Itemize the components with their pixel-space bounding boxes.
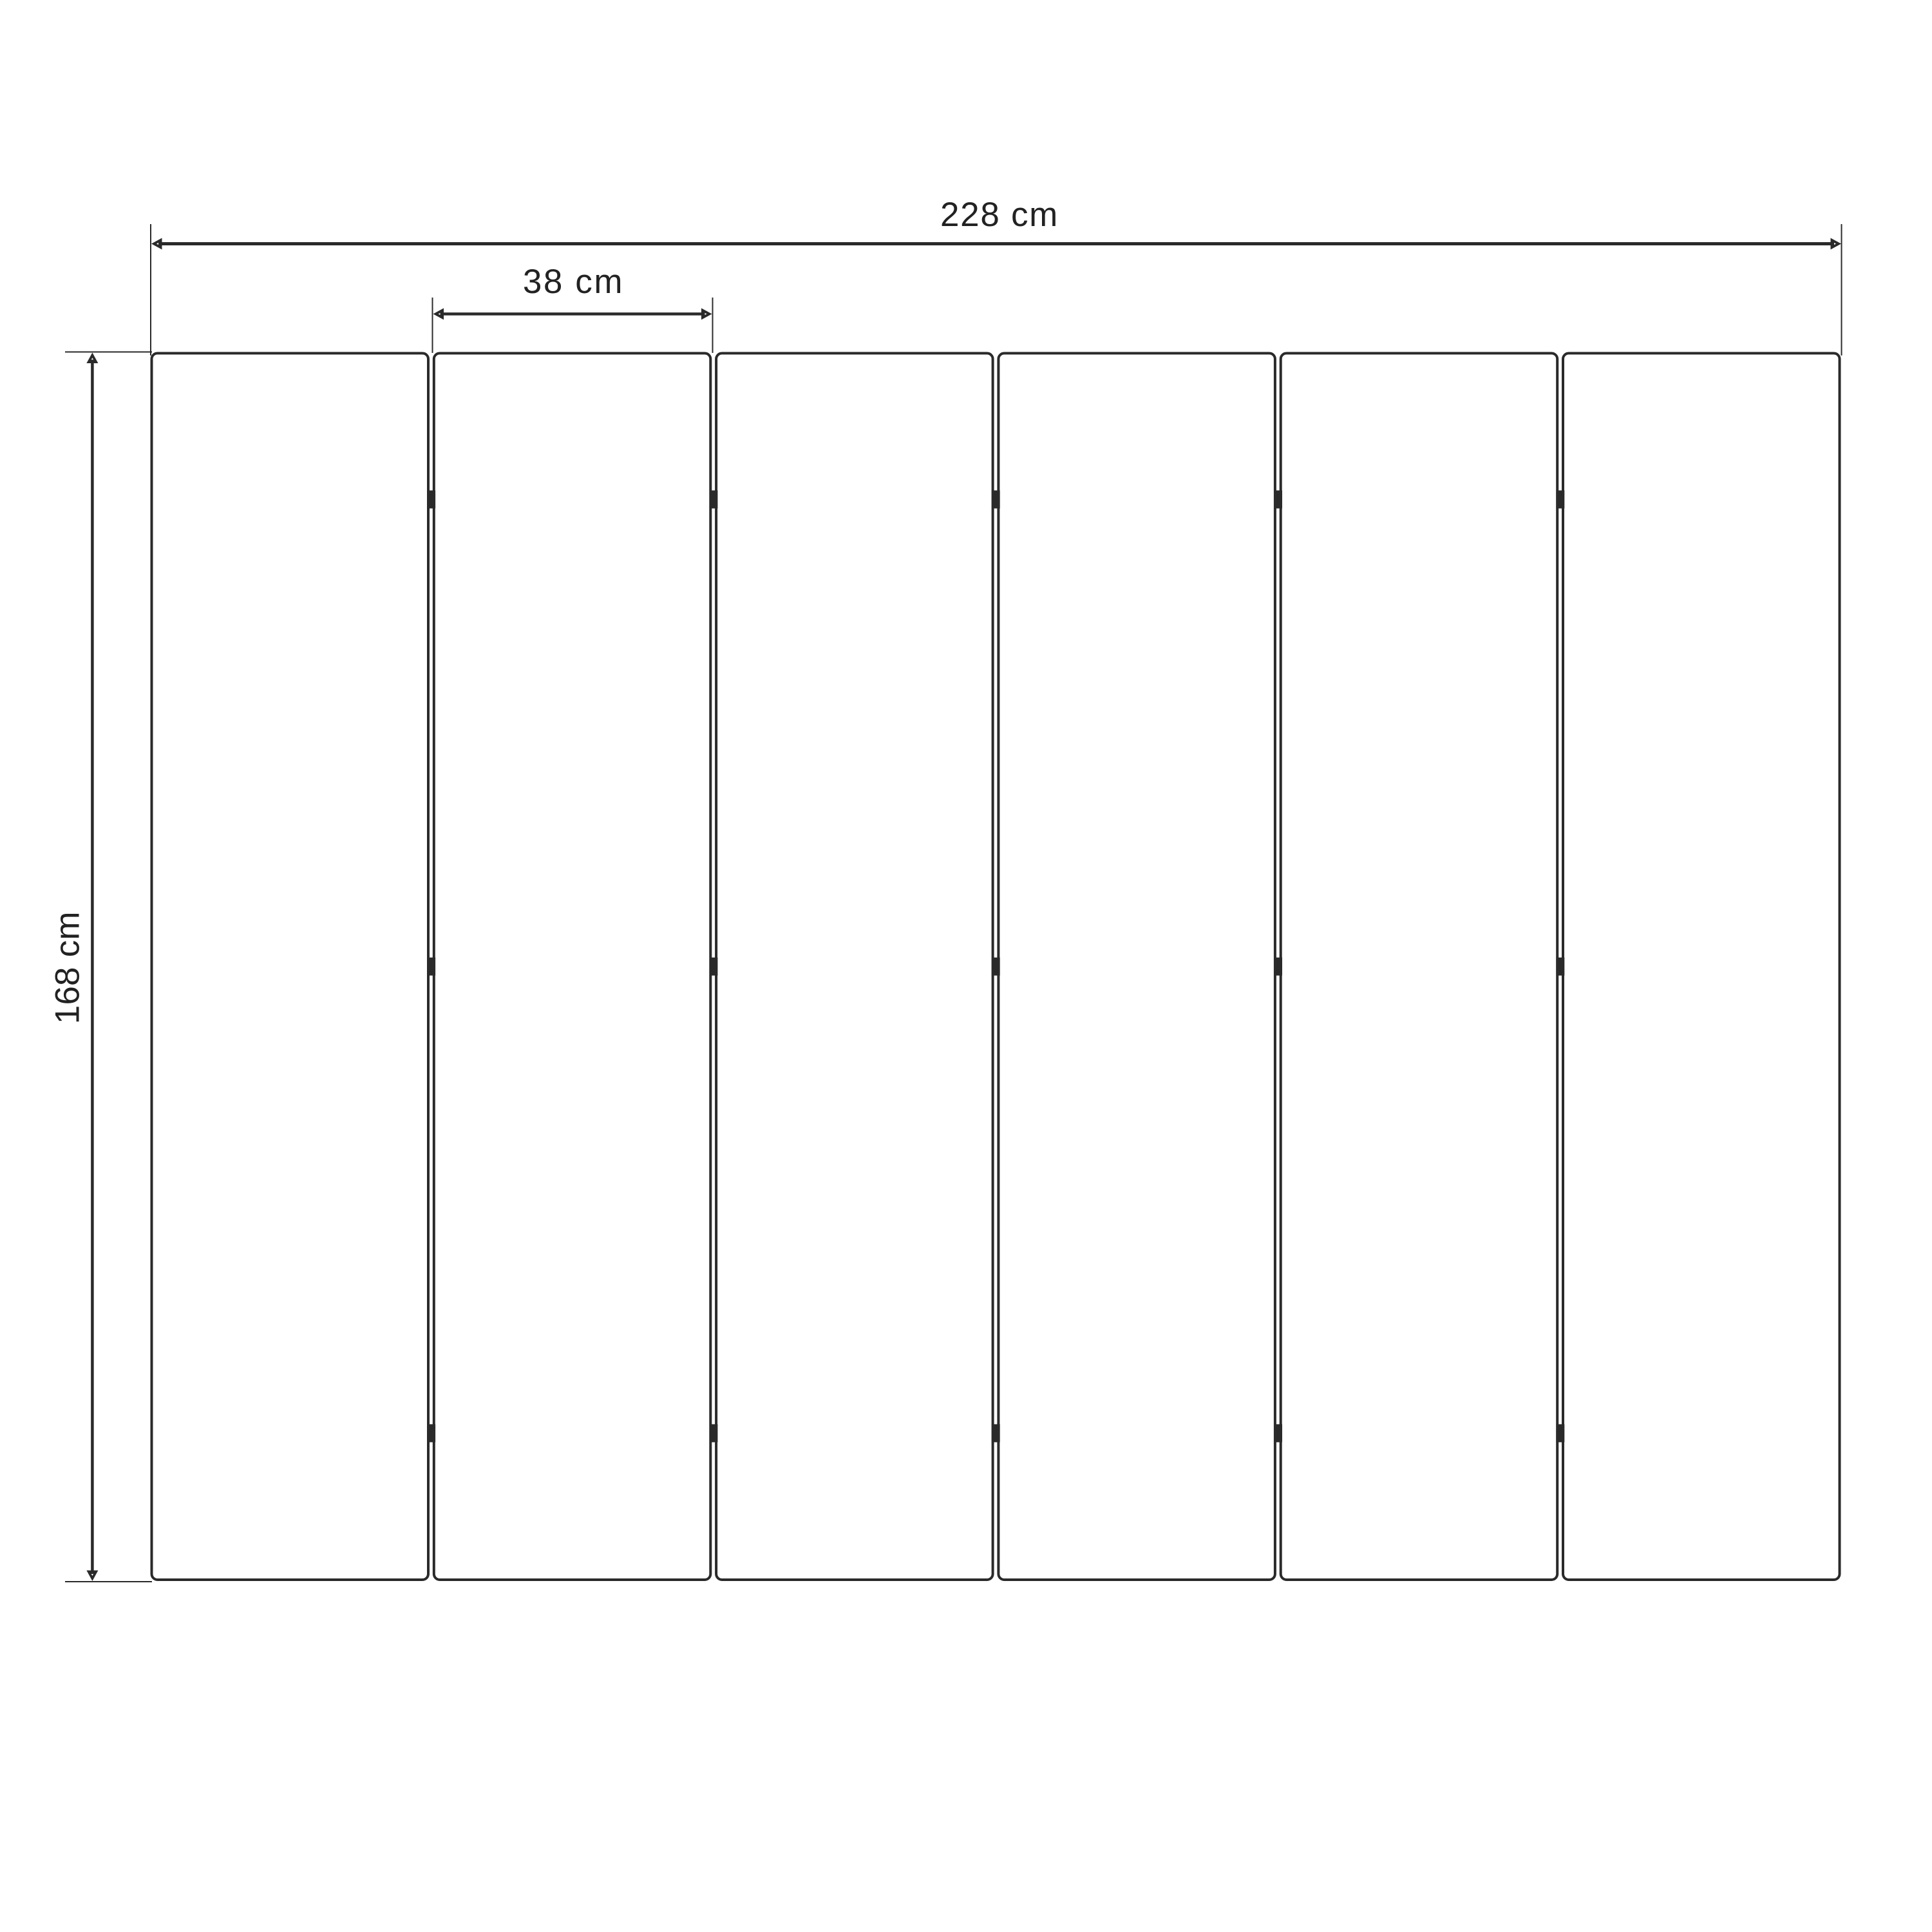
svg-text:38 cm: 38 cm — [523, 263, 624, 301]
svg-text:228 cm: 228 cm — [940, 196, 1059, 234]
svg-text:168 cm: 168 cm — [49, 911, 87, 1024]
